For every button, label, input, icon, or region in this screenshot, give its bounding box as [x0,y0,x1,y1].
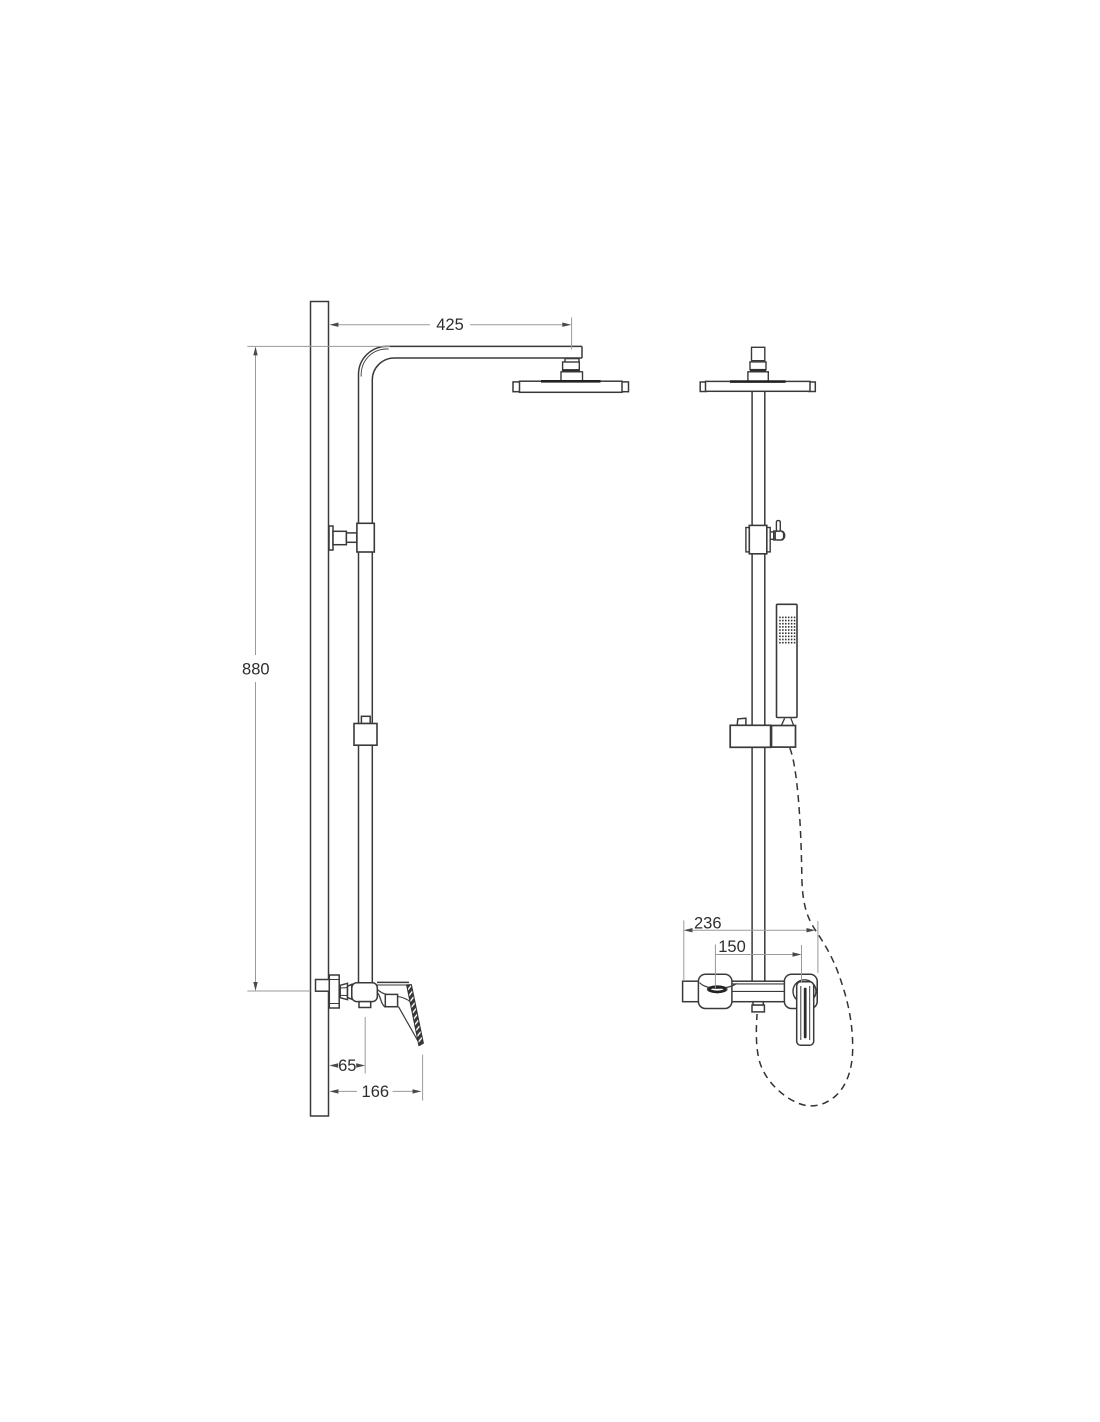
svg-text:425: 425 [436,316,464,334]
svg-text:166: 166 [362,1083,390,1101]
svg-text:236: 236 [694,915,722,933]
svg-text:150: 150 [718,938,746,956]
svg-text:880: 880 [242,661,270,679]
svg-text:65: 65 [338,1057,356,1075]
